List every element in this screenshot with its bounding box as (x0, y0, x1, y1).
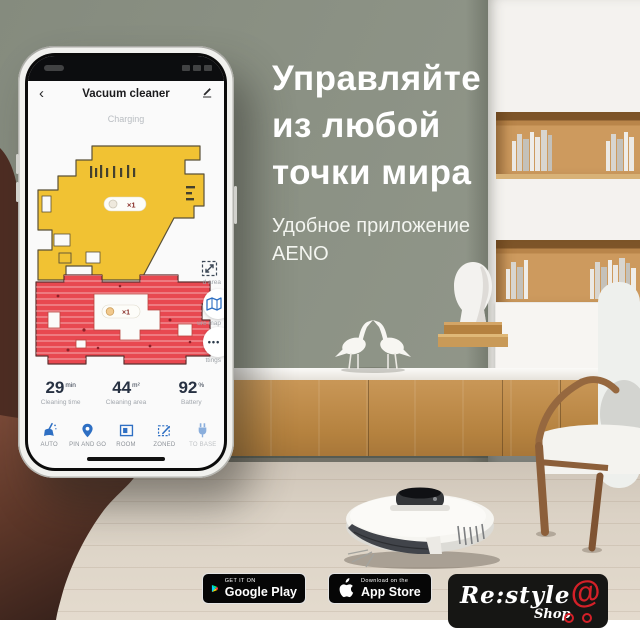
status-bar (28, 56, 224, 81)
home-indicator[interactable] (87, 457, 165, 461)
apple-icon (337, 578, 354, 599)
svg-text:×1: ×1 (127, 201, 136, 210)
mode-to-base[interactable]: TO BASE (184, 422, 222, 448)
mode-pin-and-go[interactable]: PIN AND GO (68, 422, 106, 448)
mode-zoned[interactable]: ZONED (145, 422, 183, 448)
more-icon: ••• (208, 337, 220, 347)
badge-store-name: App Store (361, 586, 421, 599)
signal-wifi-battery-icons (182, 65, 212, 71)
google-play-badge[interactable]: GET IT ON Google Play (202, 573, 306, 604)
volume-up-button (16, 154, 19, 174)
stats-row: 29min Cleaning time 44m² Cleaning area 9… (28, 378, 224, 406)
broom-icon (41, 422, 58, 439)
mode-room[interactable]: ROOM (107, 422, 145, 448)
zone-badge-upper[interactable]: ×1 (104, 197, 146, 211)
hero-text: Управляйте из любой точки мира Удобное п… (272, 55, 632, 268)
hero-brand: AENO (272, 240, 632, 268)
cart-wheel-icon (564, 613, 574, 623)
badge-tagline: GET IT ON (225, 579, 297, 585)
vacuum-app: ‹ Vacuum cleaner Charging (28, 56, 224, 468)
app-nav-bar: ‹ Vacuum cleaner (28, 81, 224, 107)
map-icon (206, 297, 222, 311)
app-store-badge[interactable]: Download on the App Store (328, 573, 432, 604)
pin-icon (79, 422, 96, 439)
device-status: Charging (28, 114, 224, 124)
hero-title-line2: из любой (272, 102, 632, 149)
zone-badge-lower[interactable]: ×1 (102, 305, 140, 318)
hero-title-line3: точки мира (272, 149, 632, 196)
google-play-icon (211, 578, 218, 599)
hero-title-line1: Управляйте (272, 55, 632, 102)
ad-banner: ‹ Vacuum cleaner Charging (0, 0, 640, 640)
clock-hint (44, 65, 64, 71)
side-label-settings: ttings (205, 357, 221, 364)
smartphone: ‹ Vacuum cleaner Charging (18, 46, 234, 478)
shop-name: Re:style (460, 582, 571, 609)
cleaning-map[interactable]: ×1 ×1 (28, 134, 224, 374)
room-icon (118, 422, 135, 439)
mode-toolbar: AUTO PIN AND GO ROOM (30, 422, 222, 448)
svg-text:×1: ×1 (122, 310, 130, 317)
badge-tagline: Download on the (361, 579, 421, 585)
mode-auto[interactable]: AUTO (30, 422, 68, 448)
at-cart-icon: @ (567, 573, 602, 613)
restyle-shop-logo: Re:style Shop @ (448, 574, 608, 628)
plug-icon (194, 422, 211, 439)
cart-wheel-icon (582, 613, 592, 623)
page-title: Vacuum cleaner (28, 88, 224, 100)
side-label-area: d area (203, 279, 221, 286)
stat-cleaning-area: 44m² Cleaning area (93, 378, 158, 406)
map-zone-upper[interactable] (38, 146, 204, 280)
stat-battery: 92% Battery (159, 378, 224, 406)
hero-subtitle: Удобное приложение (272, 212, 632, 240)
stat-cleaning-time: 29min Cleaning time (28, 378, 93, 406)
phone-screen: ‹ Vacuum cleaner Charging (25, 53, 227, 471)
badge-store-name: Google Play (225, 586, 297, 599)
volume-down-button (16, 182, 19, 202)
side-label-map: ure map (197, 320, 221, 327)
zone-icon (156, 422, 173, 439)
power-button (234, 186, 237, 224)
